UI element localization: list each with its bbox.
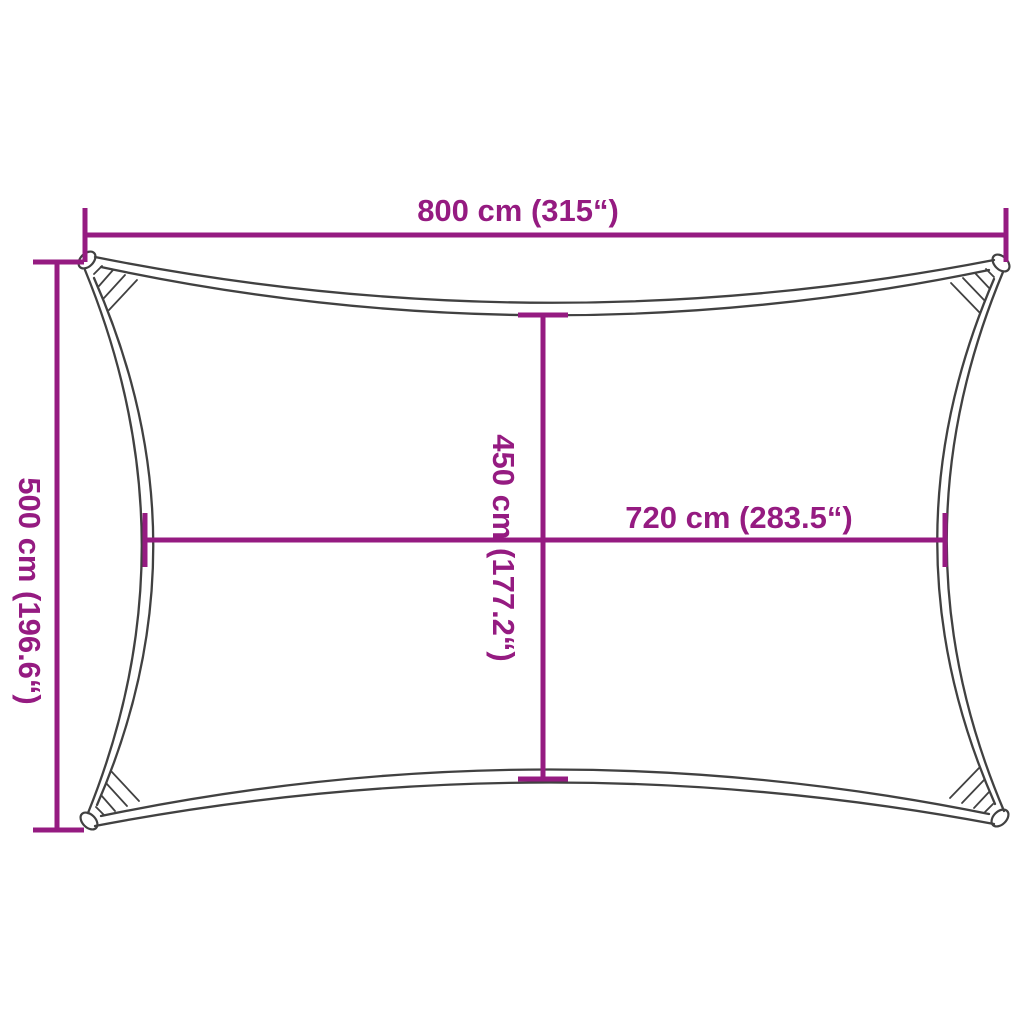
sail-corner-top-right (951, 251, 1013, 313)
sail-top-edge-inner (101, 267, 989, 315)
dimension-label-outer-width: 800 cm (315“) (417, 193, 619, 228)
corner-ring-icon (988, 806, 1011, 829)
sail-right-edge-outer (947, 272, 1004, 811)
dimension-label-outer-height: 500 cm (196.6“) (12, 477, 47, 704)
sail-bottom-edge-outer (95, 782, 994, 826)
sail-left-edge-outer (85, 270, 142, 813)
dimension-label-inner-height: 450 cm (177.2“) (486, 434, 521, 661)
dimension-outer-width: 800 cm (315“) (85, 193, 1006, 262)
dimension-outer-height: 500 cm (196.6“) (12, 262, 84, 830)
dimension-label-inner-width: 720 cm (283.5“) (625, 500, 852, 535)
product-dimension-diagram: 800 cm (315“) 500 cm (196.6“) 450 cm (17… (0, 0, 1024, 1024)
shade-sail-diagram-canvas: 800 cm (315“) 500 cm (196.6“) 450 cm (17… (0, 0, 1024, 1024)
dimension-inner-height: 450 cm (177.2“) (486, 315, 568, 779)
sail-top-edge-outer (95, 257, 994, 303)
corner-stitches (950, 768, 993, 812)
corner-ring-icon (989, 251, 1012, 274)
